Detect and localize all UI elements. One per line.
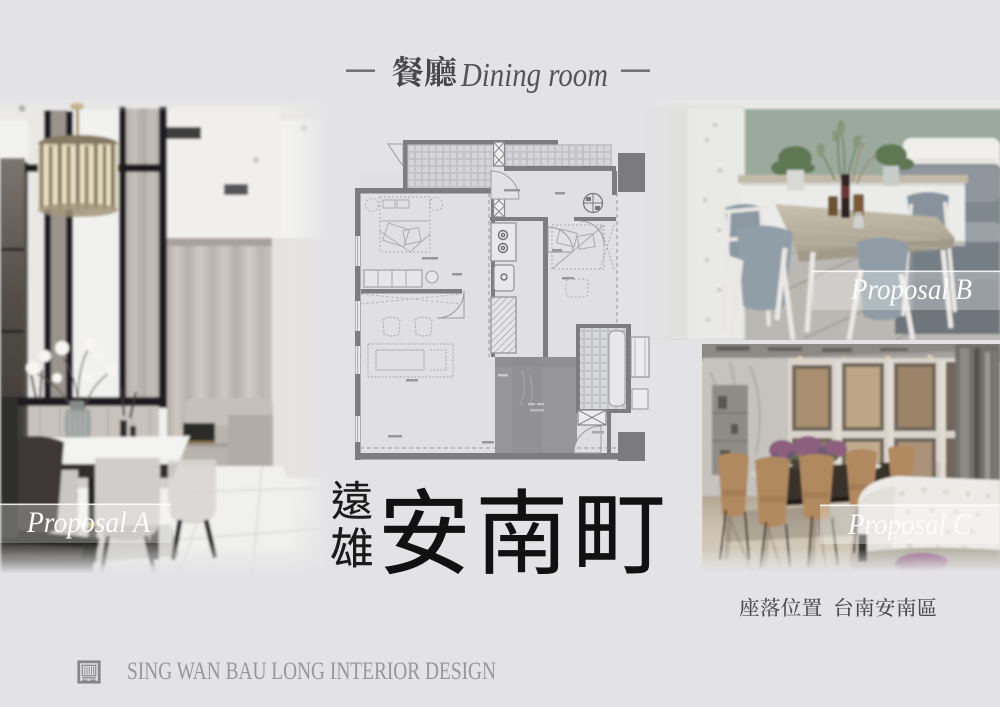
svg-text:Proposal A: Proposal A <box>26 506 151 539</box>
svg-text:Dining room: Dining room <box>460 57 608 94</box>
svg-text:SING WAN BAU LONG INTERIOR DES: SING WAN BAU LONG INTERIOR DESIGN <box>127 658 496 685</box>
svg-text:Proposal B: Proposal B <box>850 273 972 306</box>
svg-text:Proposal C: Proposal C <box>847 508 972 541</box>
